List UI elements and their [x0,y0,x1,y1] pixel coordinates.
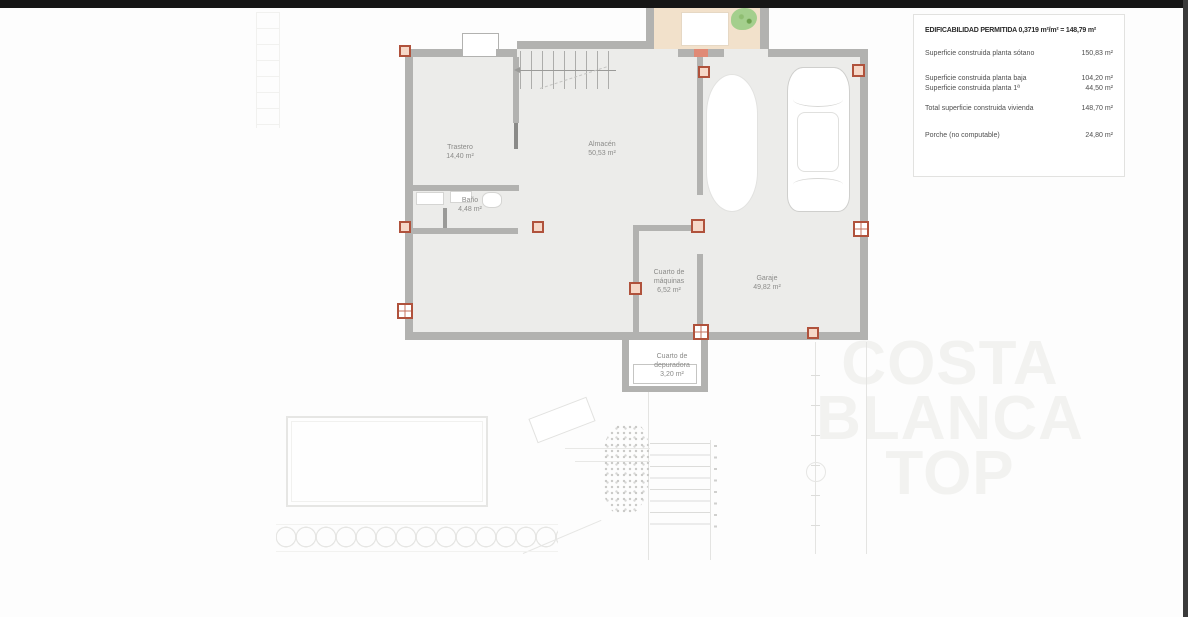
maquinas-right-wall [697,254,703,332]
exterior-stairs-treads [650,443,710,535]
exterior-wall-top-stairs [517,41,648,49]
stone-border-band [276,524,558,552]
room-area: 3,20 m² [640,370,704,379]
sink-fixture [416,192,444,205]
pool-outline [286,416,488,507]
exterior-wall-top-garage [768,49,868,57]
car-roof [797,112,839,172]
room-area: 14,40 m² [432,152,488,161]
stairs-center-line [520,70,616,71]
column-cross [853,221,869,237]
exterior-wall-top-mid1 [496,49,517,57]
room-name: Cuarto de máquinas [644,268,694,286]
room-name: Garaje [742,274,792,283]
planter-outline [528,397,595,443]
car-outline [706,74,758,212]
top-black-bar [0,0,1188,8]
terrace-table [681,12,729,46]
room-name: Trastero [432,143,488,152]
screenshot-root: COSTA BLANCA TOP [0,0,1188,617]
floor-plan: Trastero 14,40 m² Almacén 50,53 m² Baño … [0,0,1188,617]
maquinas-left-wall [633,225,639,332]
right-dark-bar [1183,0,1188,617]
room-area: 6,52 m² [644,286,694,295]
room-label-trastero: Trastero 14,40 m² [432,143,488,161]
room-label-garaje: Garaje 49,82 m² [742,274,792,292]
room-label-maquinas: Cuarto de máquinas 6,52 m² [644,268,694,295]
car-windshield [793,92,843,107]
driveway-ticks [811,375,820,535]
exterior-wall-right [860,49,868,340]
exterior-stairs-rail [710,440,711,560]
car-rear-window [793,178,843,191]
column [629,282,642,295]
bano-bottom-wall [405,228,518,234]
maquinas-top-wall [633,225,695,231]
column [698,66,710,78]
room-name: Almacén [572,140,632,149]
column-cross [397,303,413,319]
room-area: 50,53 m² [572,149,632,158]
room-label-almacen: Almacén 50,53 m² [572,140,632,158]
driveway-line [866,342,867,554]
driveway-marker-circle [806,462,826,482]
column [852,64,865,77]
exterior-wall-bottom [405,332,868,340]
room-label-bano: Baño 4,48 m² [448,196,492,214]
column [399,221,411,233]
exterior-stairs-step-marks [714,445,717,535]
gravel-patch [603,424,649,514]
depuradora-bottom-wall [622,386,708,392]
room-label-depuradora: Cuarto de depuradora 3,20 m² [640,352,704,379]
depuradora-left-wall [622,340,629,392]
room-name: Cuarto de depuradora [640,352,704,370]
column-cross [693,324,709,340]
terrace-wall-right [760,8,769,49]
terrace-entry-column [694,49,708,57]
room-name: Baño [448,196,492,205]
roof-notch [462,33,499,57]
room-area: 4,48 m² [448,205,492,214]
trastero-door [514,123,518,149]
column [691,219,705,233]
exterior-wall-left [405,49,413,340]
left-detail-strip [256,12,280,128]
exterior-wall-top-left [405,49,465,57]
room-area: 49,82 m² [742,283,792,292]
stairs-arrow-icon [514,67,520,73]
column [399,45,411,57]
column [532,221,544,233]
column [807,327,819,339]
bano-partition [443,208,447,228]
